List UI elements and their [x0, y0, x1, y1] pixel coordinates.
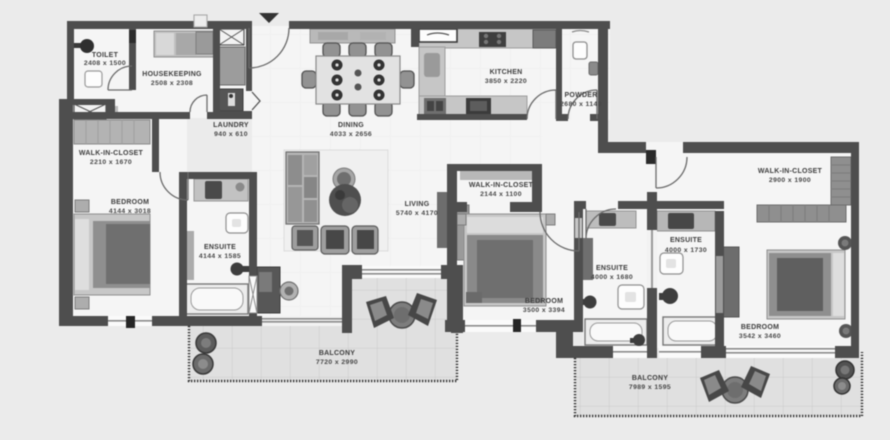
svg-text:2144 x 1100: 2144 x 1100 — [480, 191, 522, 198]
svg-text:TOILET: TOILET — [92, 52, 119, 59]
svg-text:3542 x 3460: 3542 x 3460 — [739, 333, 781, 340]
svg-text:WALK-IN-CLOSET: WALK-IN-CLOSET — [469, 182, 534, 189]
svg-text:2408 x 1500: 2408 x 1500 — [84, 60, 126, 67]
svg-text:2508 x 2308: 2508 x 2308 — [151, 80, 193, 87]
svg-text:BEDROOM: BEDROOM — [111, 199, 149, 206]
svg-text:BEDROOM: BEDROOM — [525, 298, 563, 305]
svg-text:LAUNDRY: LAUNDRY — [213, 122, 249, 129]
svg-text:ENSUITE: ENSUITE — [204, 244, 236, 251]
svg-text:2900 x 1900: 2900 x 1900 — [769, 177, 811, 184]
svg-text:7720 x 2990: 7720 x 2990 — [316, 359, 358, 366]
svg-text:4144 x 3018: 4144 x 3018 — [109, 208, 151, 215]
svg-text:WALK-IN-CLOSET: WALK-IN-CLOSET — [758, 168, 823, 175]
svg-text:2680 x 1140: 2680 x 1140 — [560, 101, 602, 108]
svg-text:BALCONY: BALCONY — [632, 375, 668, 382]
svg-text:4000 x 1730: 4000 x 1730 — [665, 247, 707, 254]
svg-text:ENSUITE: ENSUITE — [670, 237, 702, 244]
svg-text:KITCHEN: KITCHEN — [490, 69, 523, 76]
svg-text:5740 x 4170: 5740 x 4170 — [396, 210, 438, 217]
svg-text:DINING: DINING — [338, 122, 364, 129]
svg-text:POWDER: POWDER — [565, 92, 598, 99]
svg-text:3850 x 2220: 3850 x 2220 — [485, 78, 527, 85]
svg-text:4144 x 1585: 4144 x 1585 — [199, 253, 241, 260]
svg-text:HOUSEKEEPING: HOUSEKEEPING — [142, 71, 202, 78]
svg-text:2210 x 1670: 2210 x 1670 — [90, 159, 132, 166]
svg-text:940 x 610: 940 x 610 — [214, 131, 248, 138]
svg-text:BEDROOM: BEDROOM — [741, 324, 779, 331]
svg-text:BALCONY: BALCONY — [319, 350, 355, 357]
svg-text:WALK-IN-CLOSET: WALK-IN-CLOSET — [79, 150, 144, 157]
svg-text:3500 x 3394: 3500 x 3394 — [523, 307, 565, 314]
svg-text:LIVING: LIVING — [405, 201, 430, 208]
svg-text:7989 x 1595: 7989 x 1595 — [629, 384, 671, 391]
svg-text:4000 x 1680: 4000 x 1680 — [591, 274, 633, 281]
svg-text:4033 x 2656: 4033 x 2656 — [330, 131, 372, 138]
svg-text:ENSUITE: ENSUITE — [596, 265, 628, 272]
